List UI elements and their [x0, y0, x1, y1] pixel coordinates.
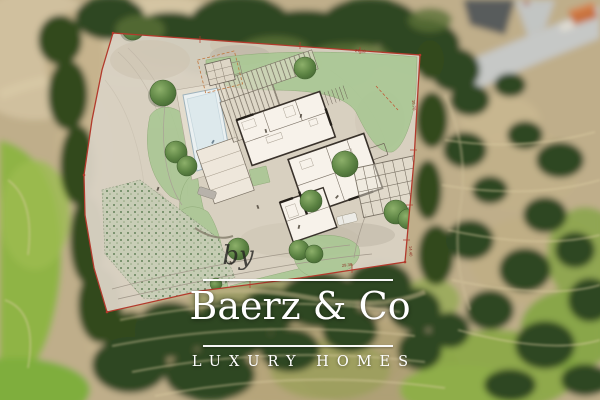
watermark-tagline: LUXURY HOMES [0, 354, 600, 370]
watermark-by-label: by [0, 241, 538, 271]
watermark-divider-top [203, 279, 393, 281]
property-aerial-image: 27.18 16.70 14.40 29.38 by Baerz & Co LU… [0, 0, 600, 400]
watermark-divider-bottom [203, 345, 393, 347]
aerial-photo-background: 27.18 16.70 14.40 29.38 [0, 0, 600, 400]
tree-marker [300, 190, 322, 212]
tree-marker [177, 156, 197, 176]
watermark-brand-name: Baerz & Co [0, 286, 600, 328]
tree-marker [332, 151, 358, 177]
tree-marker [294, 57, 316, 79]
dimension-label: 16.70 [411, 100, 417, 111]
dimension-label: 27.18 [355, 48, 366, 54]
